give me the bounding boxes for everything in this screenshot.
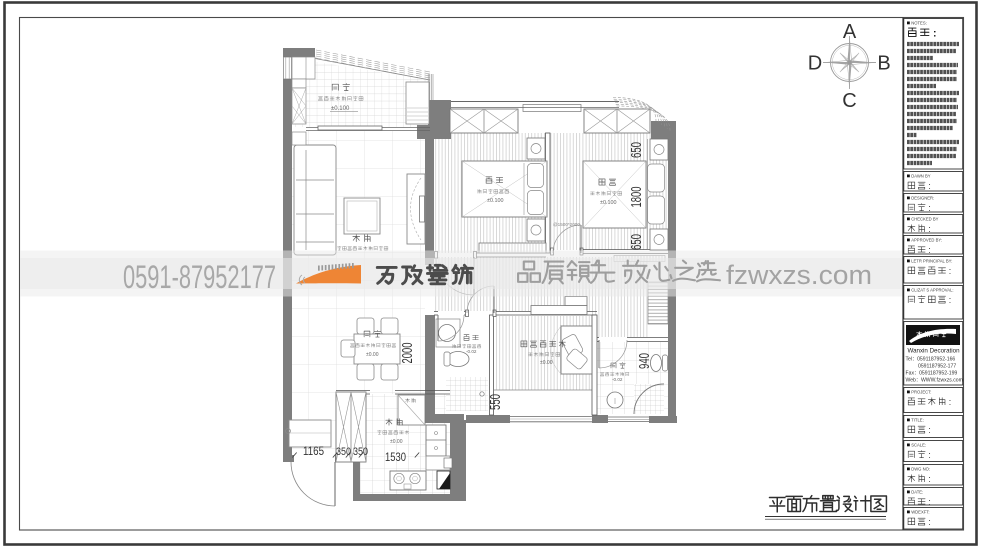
svg-text:±0.100: ±0.100 [331, 106, 350, 112]
svg-text::: : [949, 295, 951, 305]
svg-text:WDEXFT:: WDEXFT: [911, 510, 929, 515]
svg-text::: : [949, 266, 951, 276]
svg-text:DWG NO:: DWG NO: [911, 467, 930, 472]
svg-text::: : [933, 28, 937, 40]
svg-text:TITLE:: TITLE: [911, 418, 924, 423]
svg-text:-0.02: -0.02 [466, 349, 477, 354]
svg-text::: : [928, 224, 930, 234]
svg-text::: : [928, 181, 930, 191]
svg-text:DATE:: DATE: [911, 490, 923, 495]
svg-text:Tel：0591187952-166: Tel：0591187952-166 [906, 357, 956, 363]
svg-text:±0.00: ±0.00 [540, 360, 553, 366]
svg-text:APPROVED BY:: APPROVED BY: [911, 238, 942, 243]
svg-text:NOTES:: NOTES: [911, 21, 927, 26]
svg-text:A: A [843, 21, 857, 43]
svg-text:0591-87952177: 0591-87952177 [123, 259, 276, 295]
svg-text:0591187952-177: 0591187952-177 [918, 364, 956, 370]
svg-text:Web：WWW.fzwxzs.com: Web：WWW.fzwxzs.com [906, 378, 963, 384]
svg-text:fzwxzs.com: fzwxzs.com [726, 260, 872, 290]
svg-text::: : [928, 245, 930, 255]
svg-text:SCALE:: SCALE: [911, 443, 926, 448]
svg-text:2000: 2000 [400, 343, 416, 364]
svg-text:350: 350 [353, 446, 368, 458]
svg-text:PROJECT:: PROJECT: [911, 390, 931, 395]
svg-text:±0.100: ±0.100 [487, 198, 503, 204]
svg-text:1165: 1165 [303, 444, 324, 458]
svg-text:Wanxin Decoration: Wanxin Decoration [907, 348, 960, 355]
svg-text:D: D [808, 53, 822, 75]
svg-text:Fax：0591187952-199: Fax：0591187952-199 [906, 371, 958, 377]
svg-text:CLIZAT S APPROVAL:: CLIZAT S APPROVAL: [911, 288, 953, 293]
svg-text:C: C [842, 90, 856, 112]
svg-text:350: 350 [336, 446, 351, 458]
svg-text:DESIGNER:: DESIGNER: [911, 196, 934, 201]
svg-text:LETR PRINCIPAL BY:: LETR PRINCIPAL BY: [911, 259, 952, 264]
svg-text:DAWN BY: DAWN BY [911, 174, 931, 179]
svg-text:1530: 1530 [385, 450, 406, 464]
svg-text::: : [949, 397, 951, 407]
svg-text:550: 550 [488, 394, 504, 410]
svg-text::: : [928, 474, 930, 484]
svg-text::: : [928, 517, 930, 527]
svg-text:CHECKED BY: CHECKED BY [911, 217, 938, 222]
svg-text::: : [928, 497, 930, 507]
svg-text:650: 650 [629, 142, 645, 158]
svg-text:940: 940 [637, 353, 653, 369]
svg-text:-0.02: -0.02 [612, 377, 623, 382]
svg-text::: : [928, 203, 930, 213]
svg-text:1800: 1800 [629, 187, 645, 208]
svg-text::: : [928, 450, 930, 460]
svg-text:650: 650 [629, 234, 645, 250]
svg-text:@1500*2000: @1500*2000 [553, 222, 580, 227]
svg-text:±0.00: ±0.00 [366, 352, 379, 358]
svg-text::: : [928, 425, 930, 435]
svg-text:±0.00: ±0.00 [390, 439, 403, 445]
svg-text:±0.100: ±0.100 [600, 200, 616, 206]
svg-text:B: B [877, 53, 890, 75]
